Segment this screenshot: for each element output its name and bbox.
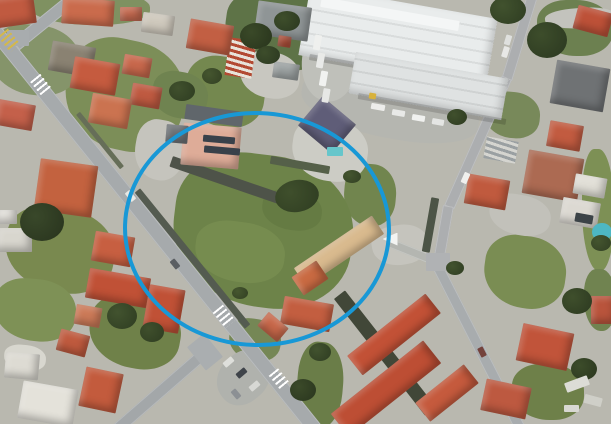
house [56,328,91,357]
tree [107,303,137,329]
tree [309,343,331,361]
building-white-left-small [0,210,17,224]
tree [290,379,316,401]
tree [202,68,222,84]
forklift [368,92,376,99]
house [591,296,611,324]
house [546,120,584,152]
house [120,7,142,21]
trailer [583,393,603,406]
tree [256,46,280,64]
building-white-yard [4,352,40,381]
garage-row-corrugated [483,136,518,163]
house [61,0,115,27]
tree [169,81,195,101]
tree [591,235,611,251]
house [0,99,36,131]
tree [447,109,467,125]
tree [274,11,300,31]
house-white [141,12,175,36]
tree [140,322,164,342]
building-gray-small [272,61,300,80]
house-dark-gray-topright [550,60,611,113]
shed-red-top [277,35,291,48]
aerial-satellite-image [0,0,611,424]
screenshot [0,0,611,424]
house [186,18,235,55]
tree [562,288,592,314]
grass-right-middle [479,231,570,314]
house-white-roof-large [17,380,79,424]
tree [527,22,567,58]
house [516,323,575,371]
house [464,174,511,211]
tree [20,203,64,241]
house [78,366,123,413]
tree [446,261,464,275]
trailer [564,405,579,412]
house [73,304,102,328]
